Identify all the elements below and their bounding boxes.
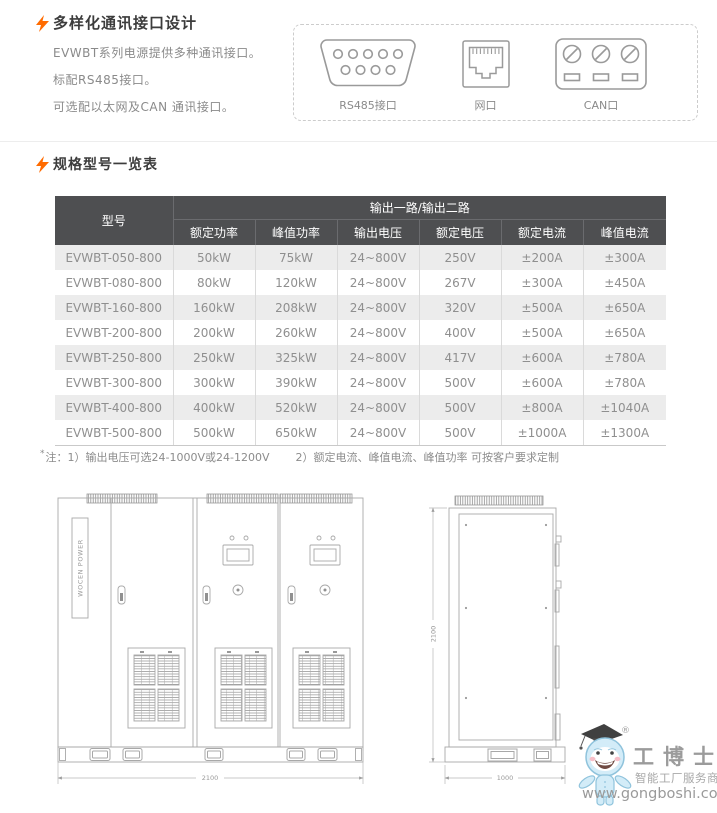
brand-plate-label: WOCEN POWER bbox=[77, 539, 85, 597]
side-depth-dimension: 1000 bbox=[497, 774, 514, 782]
spec-cell: 160kW bbox=[173, 295, 255, 320]
door-handle bbox=[203, 586, 210, 604]
spec-cell: ±300A bbox=[501, 270, 583, 295]
spec-cell: 24~800V bbox=[337, 270, 419, 295]
column-header: 峰值功率 bbox=[255, 220, 337, 246]
spec-cell: 24~800V bbox=[337, 395, 419, 420]
note-text-1: 注：1）输出电压可选24-1000V或24-1200V bbox=[46, 451, 270, 464]
roof-grille bbox=[280, 494, 352, 503]
vent-grille bbox=[293, 648, 350, 728]
spec-cell: ±600A bbox=[501, 345, 583, 370]
spec-cell: 24~800V bbox=[337, 420, 419, 446]
spec-cell: 500V bbox=[419, 370, 501, 395]
spec-cell: 208kW bbox=[255, 295, 337, 320]
spec-cell: 520kW bbox=[255, 395, 337, 420]
door-handle bbox=[288, 586, 295, 604]
comm-text-line: EVWBT系列电源提供多种通讯接口。 bbox=[53, 40, 261, 67]
spec-cell: ±600A bbox=[501, 370, 583, 395]
spec-cell: ±780A bbox=[583, 370, 666, 395]
front-width-dimension: 2100 bbox=[202, 774, 219, 782]
watermark-url[interactable]: www.gongboshi.com bbox=[582, 786, 717, 802]
spec-cell: 24~800V bbox=[337, 320, 419, 345]
table-row: EVWBT-160-800160kW208kW24~800V320V±500A±… bbox=[55, 295, 666, 320]
table-row: EVWBT-080-80080kW120kW24~800V267V±300A±4… bbox=[55, 270, 666, 295]
model-cell: EVWBT-080-800 bbox=[55, 270, 173, 295]
model-cell: EVWBT-250-800 bbox=[55, 345, 173, 370]
display-screen bbox=[223, 545, 253, 565]
spec-cell: ±800A bbox=[501, 395, 583, 420]
comm-text-line: 可选配以太网及CAN 通讯接口。 bbox=[53, 94, 261, 121]
spec-cell: 120kW bbox=[255, 270, 337, 295]
can-label: CAN口 bbox=[584, 97, 618, 113]
spec-cell: 50kW bbox=[173, 245, 255, 270]
spec-cell: 500kW bbox=[173, 420, 255, 446]
spec-cell: ±1040A bbox=[583, 395, 666, 420]
port-group-ethernet: 网口 bbox=[462, 36, 510, 113]
side-view bbox=[445, 496, 565, 762]
section-divider bbox=[0, 141, 717, 142]
indicator-led bbox=[230, 536, 234, 540]
table-row: EVWBT-400-800400kW520kW24~800V500V±800A±… bbox=[55, 395, 666, 420]
can-connector-icon bbox=[555, 36, 647, 92]
vent-grille bbox=[215, 648, 272, 728]
door-handle bbox=[118, 586, 125, 604]
spec-cell: 325kW bbox=[255, 345, 337, 370]
spec-cell: ±1000A bbox=[501, 420, 583, 446]
group-header-row: 型号 输出一路/输出二路 bbox=[55, 196, 666, 220]
control-panel bbox=[310, 536, 340, 595]
spec-cell: 400kW bbox=[173, 395, 255, 420]
spec-cell: ±500A bbox=[501, 320, 583, 345]
spec-cell: ±500A bbox=[501, 295, 583, 320]
vent-grille bbox=[128, 648, 185, 728]
comm-section-title: 多样化通讯接口设计 bbox=[53, 12, 197, 33]
roof-grille bbox=[455, 496, 543, 505]
spec-cell: ±650A bbox=[583, 295, 666, 320]
spec-cell: 650kW bbox=[255, 420, 337, 446]
spec-cell: ±650A bbox=[583, 320, 666, 345]
spec-cell: 267V bbox=[419, 270, 501, 295]
ethernet-connector-icon bbox=[462, 36, 510, 92]
spec-cell: 400V bbox=[419, 320, 501, 345]
mounting-foot bbox=[90, 749, 337, 761]
spec-cell: 250kW bbox=[173, 345, 255, 370]
comm-text-lines: EVWBT系列电源提供多种通讯接口。标配RS485接口。可选配以太网及CAN 通… bbox=[53, 40, 261, 121]
roof-grille bbox=[207, 494, 278, 503]
spec-cell: 250V bbox=[419, 245, 501, 270]
note-star: * bbox=[40, 449, 45, 459]
column-header: 峰值电流 bbox=[583, 220, 666, 246]
spec-cell: ±780A bbox=[583, 345, 666, 370]
spec-cell: 390kW bbox=[255, 370, 337, 395]
spec-table: 型号 输出一路/输出二路 额定功率峰值功率输出电压额定电压额定电流峰值电流 EV… bbox=[55, 196, 666, 446]
note-text-2: 2）额定电流、峰值电流、峰值功率 可按客户要求定制 bbox=[295, 451, 559, 464]
display-screen bbox=[310, 545, 340, 565]
spec-cell: 260kW bbox=[255, 320, 337, 345]
spec-cell: ±450A bbox=[583, 270, 666, 295]
rs485-connector-icon bbox=[320, 36, 416, 92]
cabinet-drawings: WOCEN POWER bbox=[42, 486, 587, 798]
table-row: EVWBT-300-800300kW390kW24~800V500V±600A±… bbox=[55, 370, 666, 395]
table-row: EVWBT-050-80050kW75kW24~800V250V±200A±30… bbox=[55, 245, 666, 270]
model-column-header: 型号 bbox=[55, 196, 173, 245]
panel-screw bbox=[465, 524, 547, 699]
mounting-foot bbox=[488, 749, 551, 761]
spec-cell: ±200A bbox=[501, 245, 583, 270]
table-row: EVWBT-500-800500kW650kW24~800V500V±1000A… bbox=[55, 420, 666, 446]
table-row: EVWBT-200-800200kW260kW24~800V400V±500A±… bbox=[55, 320, 666, 345]
spec-cell: 24~800V bbox=[337, 245, 419, 270]
spec-cell: 500V bbox=[419, 395, 501, 420]
roof-grille bbox=[87, 494, 157, 503]
spec-cell: 320V bbox=[419, 295, 501, 320]
gongboshi-watermark: ® 工博士 智能工厂服务商 www.gongboshi.com bbox=[575, 720, 717, 810]
lightning-icon bbox=[36, 15, 49, 32]
indicator-led bbox=[244, 536, 248, 540]
spec-cell: 200kW bbox=[173, 320, 255, 345]
comm-text-line: 标配RS485接口。 bbox=[53, 67, 261, 94]
table-row: EVWBT-250-800250kW325kW24~800V417V±600A±… bbox=[55, 345, 666, 370]
registered-mark: ® bbox=[621, 726, 630, 736]
table-note: *注：1）输出电压可选24-1000V或24-1200V2）额定电流、峰值电流、… bbox=[40, 449, 559, 465]
column-header: 额定电流 bbox=[501, 220, 583, 246]
front-view: WOCEN POWER bbox=[58, 494, 363, 762]
column-header: 额定功率 bbox=[173, 220, 255, 246]
spec-cell: 24~800V bbox=[337, 295, 419, 320]
column-header: 额定电压 bbox=[419, 220, 501, 246]
ethernet-label: 网口 bbox=[475, 97, 497, 113]
spec-cell: ±1300A bbox=[583, 420, 666, 446]
model-cell: EVWBT-050-800 bbox=[55, 245, 173, 270]
port-group-can: CAN口 bbox=[555, 36, 647, 113]
indicator-led bbox=[331, 536, 335, 540]
brochure-page: 多样化通讯接口设计 EVWBT系列电源提供多种通讯接口。标配RS485接口。可选… bbox=[0, 0, 717, 813]
dimension-lines: 2100 1000 2100 bbox=[58, 508, 565, 784]
output-group-header: 输出一路/输出二路 bbox=[173, 196, 666, 220]
spec-section-title: 规格型号一览表 bbox=[53, 154, 158, 174]
spec-cell: 417V bbox=[419, 345, 501, 370]
indicator-led bbox=[317, 536, 321, 540]
model-cell: EVWBT-400-800 bbox=[55, 395, 173, 420]
column-header: 输出电压 bbox=[337, 220, 419, 246]
spec-table-wrap: 型号 输出一路/输出二路 额定功率峰值功率输出电压额定电压额定电流峰值电流 EV… bbox=[55, 196, 666, 446]
rs485-label: RS485接口 bbox=[339, 97, 397, 113]
model-cell: EVWBT-500-800 bbox=[55, 420, 173, 446]
spec-cell: 75kW bbox=[255, 245, 337, 270]
spec-cell: 300kW bbox=[173, 370, 255, 395]
watermark-tagline: 智能工厂服务商 bbox=[635, 770, 717, 786]
spec-cell: ±300A bbox=[583, 245, 666, 270]
model-cell: EVWBT-160-800 bbox=[55, 295, 173, 320]
spec-table-body: EVWBT-050-80050kW75kW24~800V250V±200A±30… bbox=[55, 245, 666, 446]
side-panel bbox=[459, 514, 553, 740]
spec-cell: 24~800V bbox=[337, 345, 419, 370]
spec-cell: 24~800V bbox=[337, 370, 419, 395]
watermark-brand: 工博士 bbox=[633, 741, 717, 771]
ports-box: RS485接口 网口 bbox=[293, 24, 698, 121]
spec-cell: 80kW bbox=[173, 270, 255, 295]
port-group-rs485: RS485接口 bbox=[320, 36, 416, 113]
spec-cell: 500V bbox=[419, 420, 501, 446]
cabinet-height-dimension: 2100 bbox=[430, 626, 438, 643]
model-cell: EVWBT-200-800 bbox=[55, 320, 173, 345]
cabinet-base bbox=[58, 747, 363, 762]
lightning-icon bbox=[36, 156, 49, 173]
control-panel bbox=[223, 536, 253, 595]
model-cell: EVWBT-300-800 bbox=[55, 370, 173, 395]
